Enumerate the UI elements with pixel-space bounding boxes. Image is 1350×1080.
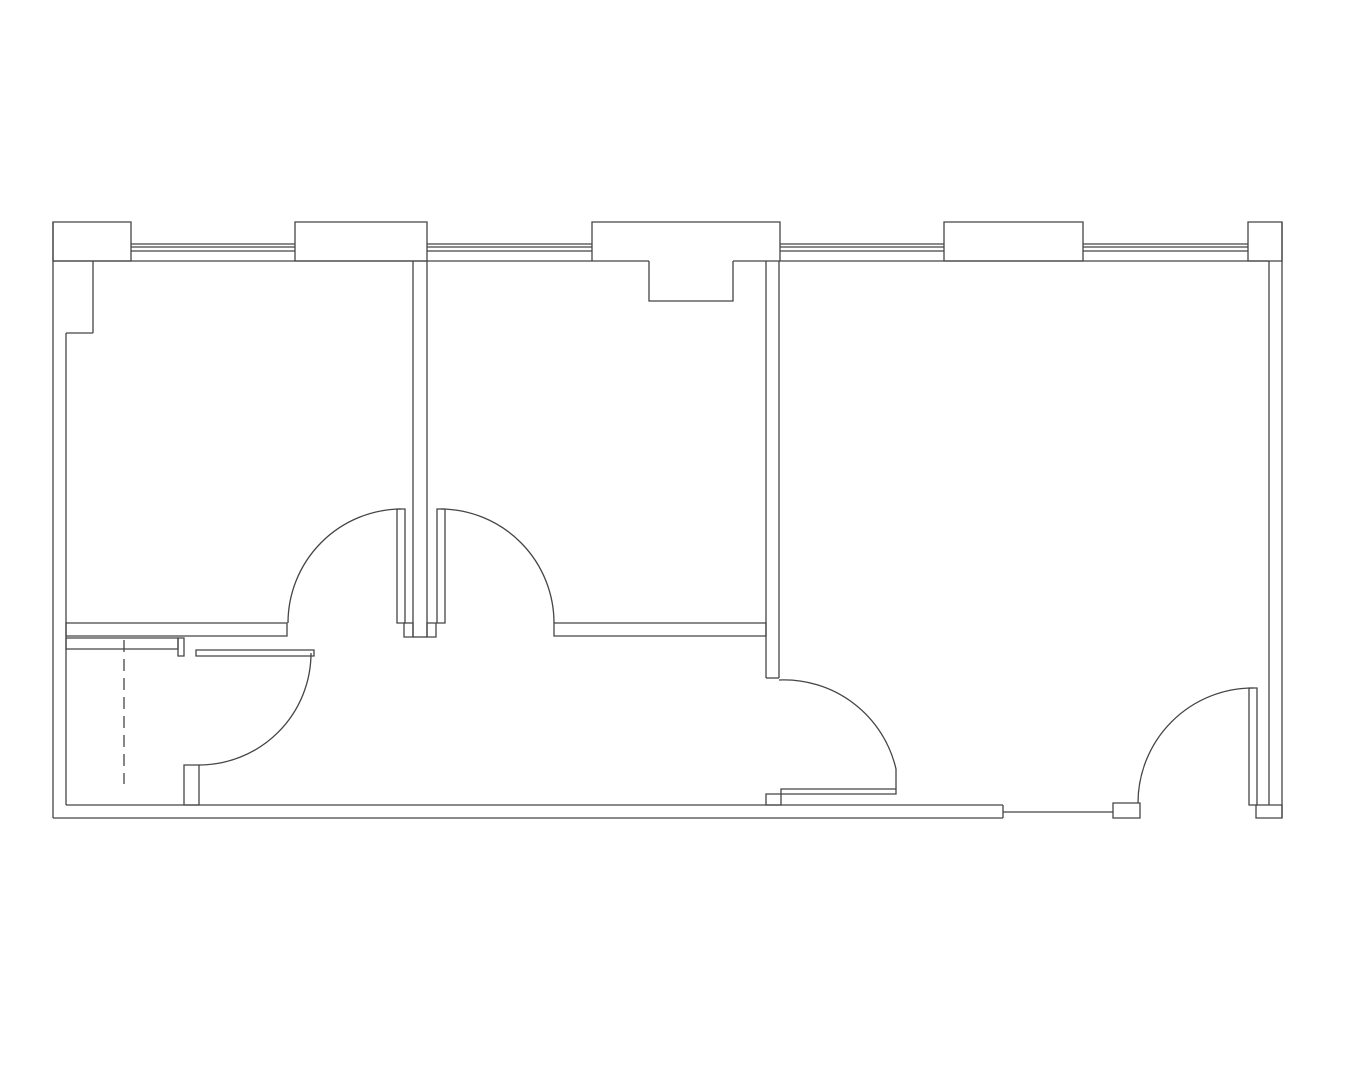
- bath-door-leaf: [196, 650, 314, 656]
- door-2-jamb: [427, 623, 436, 637]
- door-2-leaf: [437, 509, 445, 623]
- bath-door-swing-arc: [199, 653, 311, 765]
- door-2-swing-arc: [441, 509, 554, 623]
- door-1-jamb: [404, 623, 413, 637]
- entry-jamb-west: [1113, 803, 1140, 818]
- hall-wall-east: [554, 623, 766, 636]
- floor-plan-drawing: [0, 0, 1350, 1080]
- floor-plan-page: [0, 0, 1350, 1080]
- pier-5: [1248, 222, 1282, 261]
- entry-door-leaf: [1249, 688, 1257, 805]
- pier-4: [944, 222, 1083, 261]
- bath-wall-top: [66, 638, 178, 649]
- pier-1: [53, 222, 131, 261]
- pier-2: [295, 222, 427, 261]
- door-3-leaf: [781, 789, 896, 794]
- door-3-swing-arc: [779, 680, 896, 789]
- bathroom: [66, 638, 314, 805]
- bath-door-jamb: [178, 638, 184, 656]
- hall-wall-west: [66, 623, 287, 636]
- windows: [131, 244, 1248, 251]
- door-1-swing-arc: [288, 509, 401, 623]
- interior-partitions: [66, 261, 779, 678]
- exterior-shell: [53, 222, 1282, 818]
- entry-swing-arc: [1138, 688, 1253, 803]
- doors: [288, 509, 1282, 818]
- bath-wall-stub: [184, 765, 199, 805]
- entry-corner-jamb: [1256, 805, 1282, 818]
- door-3-jamb: [766, 794, 781, 805]
- door-1-leaf: [397, 509, 405, 623]
